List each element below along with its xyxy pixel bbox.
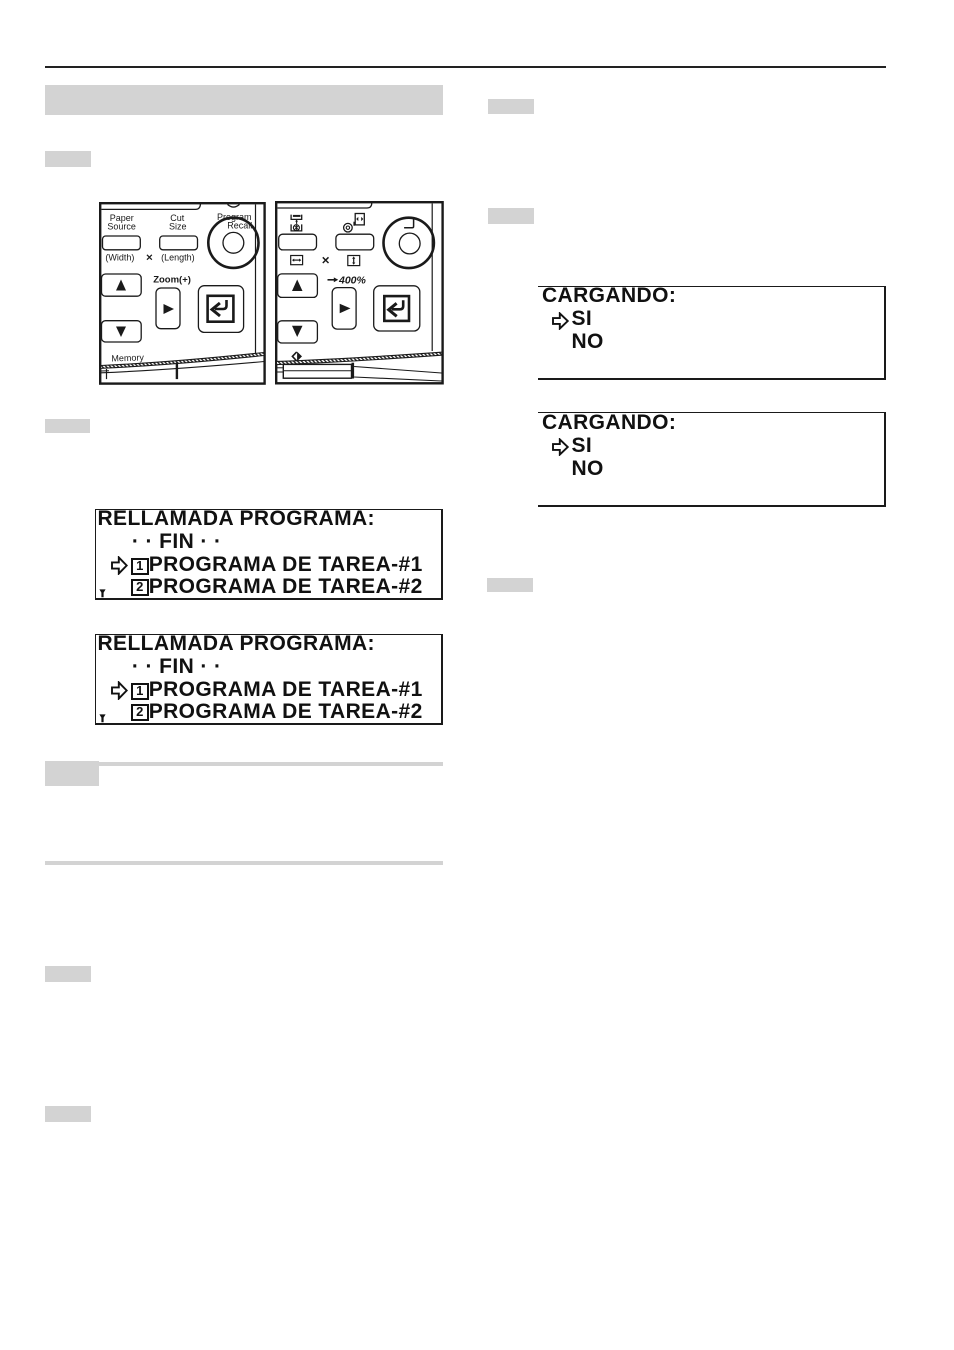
svg-text:Size: Size bbox=[169, 221, 187, 231]
svg-text:400%: 400% bbox=[338, 275, 367, 287]
svg-text:(Width): (Width) bbox=[105, 253, 134, 263]
svg-text:(Length): (Length) bbox=[161, 253, 195, 263]
svg-text:Zoom(+): Zoom(+) bbox=[153, 275, 191, 286]
svg-text:✕: ✕ bbox=[321, 255, 330, 267]
svg-text:Source: Source bbox=[107, 221, 136, 231]
svg-text:✕: ✕ bbox=[146, 253, 154, 263]
svg-text:Memory: Memory bbox=[111, 352, 144, 363]
